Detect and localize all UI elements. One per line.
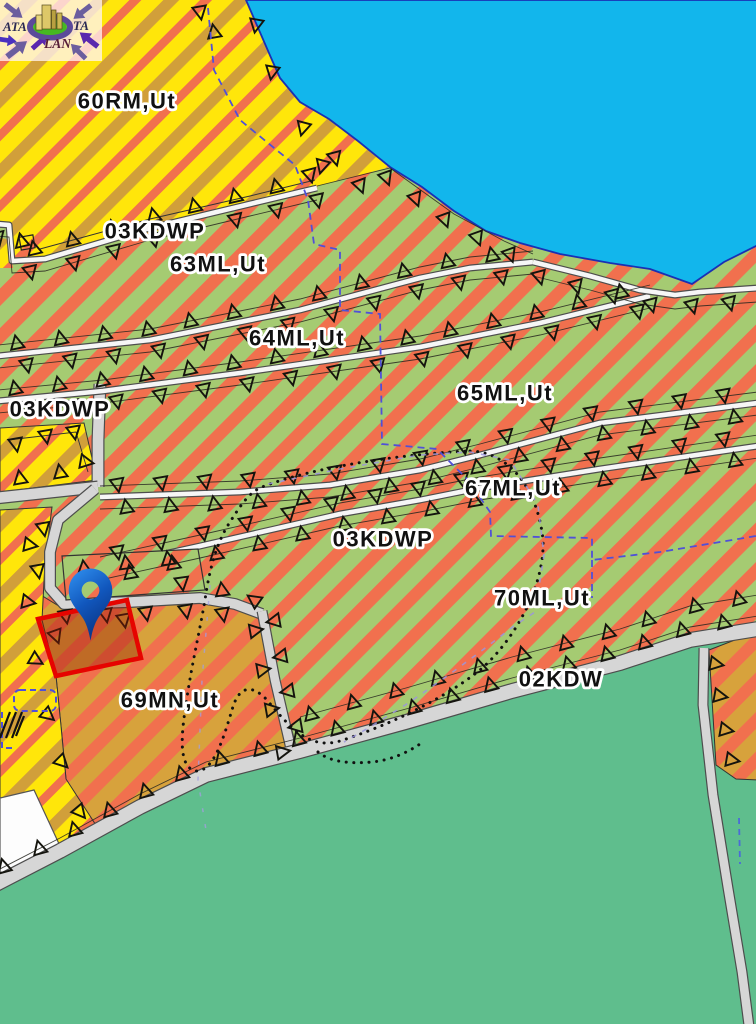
svg-text:64ML,Ut: 64ML,Ut (249, 326, 345, 351)
svg-text:60RM,Ut: 60RM,Ut (78, 89, 177, 114)
svg-text:02KDW: 02KDW (519, 667, 604, 692)
svg-text:ATA: ATA (2, 19, 27, 34)
svg-text:TA: TA (73, 18, 89, 33)
svg-text:65ML,Ut: 65ML,Ut (457, 381, 553, 406)
svg-text:69MN,Ut: 69MN,Ut (121, 688, 220, 713)
svg-text:03KDWP: 03KDWP (10, 397, 111, 422)
svg-text:67ML,Ut: 67ML,Ut (465, 476, 561, 501)
svg-text:63ML,Ut: 63ML,Ut (170, 252, 266, 277)
svg-text:03KDWP: 03KDWP (333, 527, 434, 552)
svg-text:LAN: LAN (43, 36, 72, 51)
svg-text:70ML,Ut: 70ML,Ut (494, 586, 590, 611)
svg-text:03KDWP: 03KDWP (105, 219, 206, 244)
